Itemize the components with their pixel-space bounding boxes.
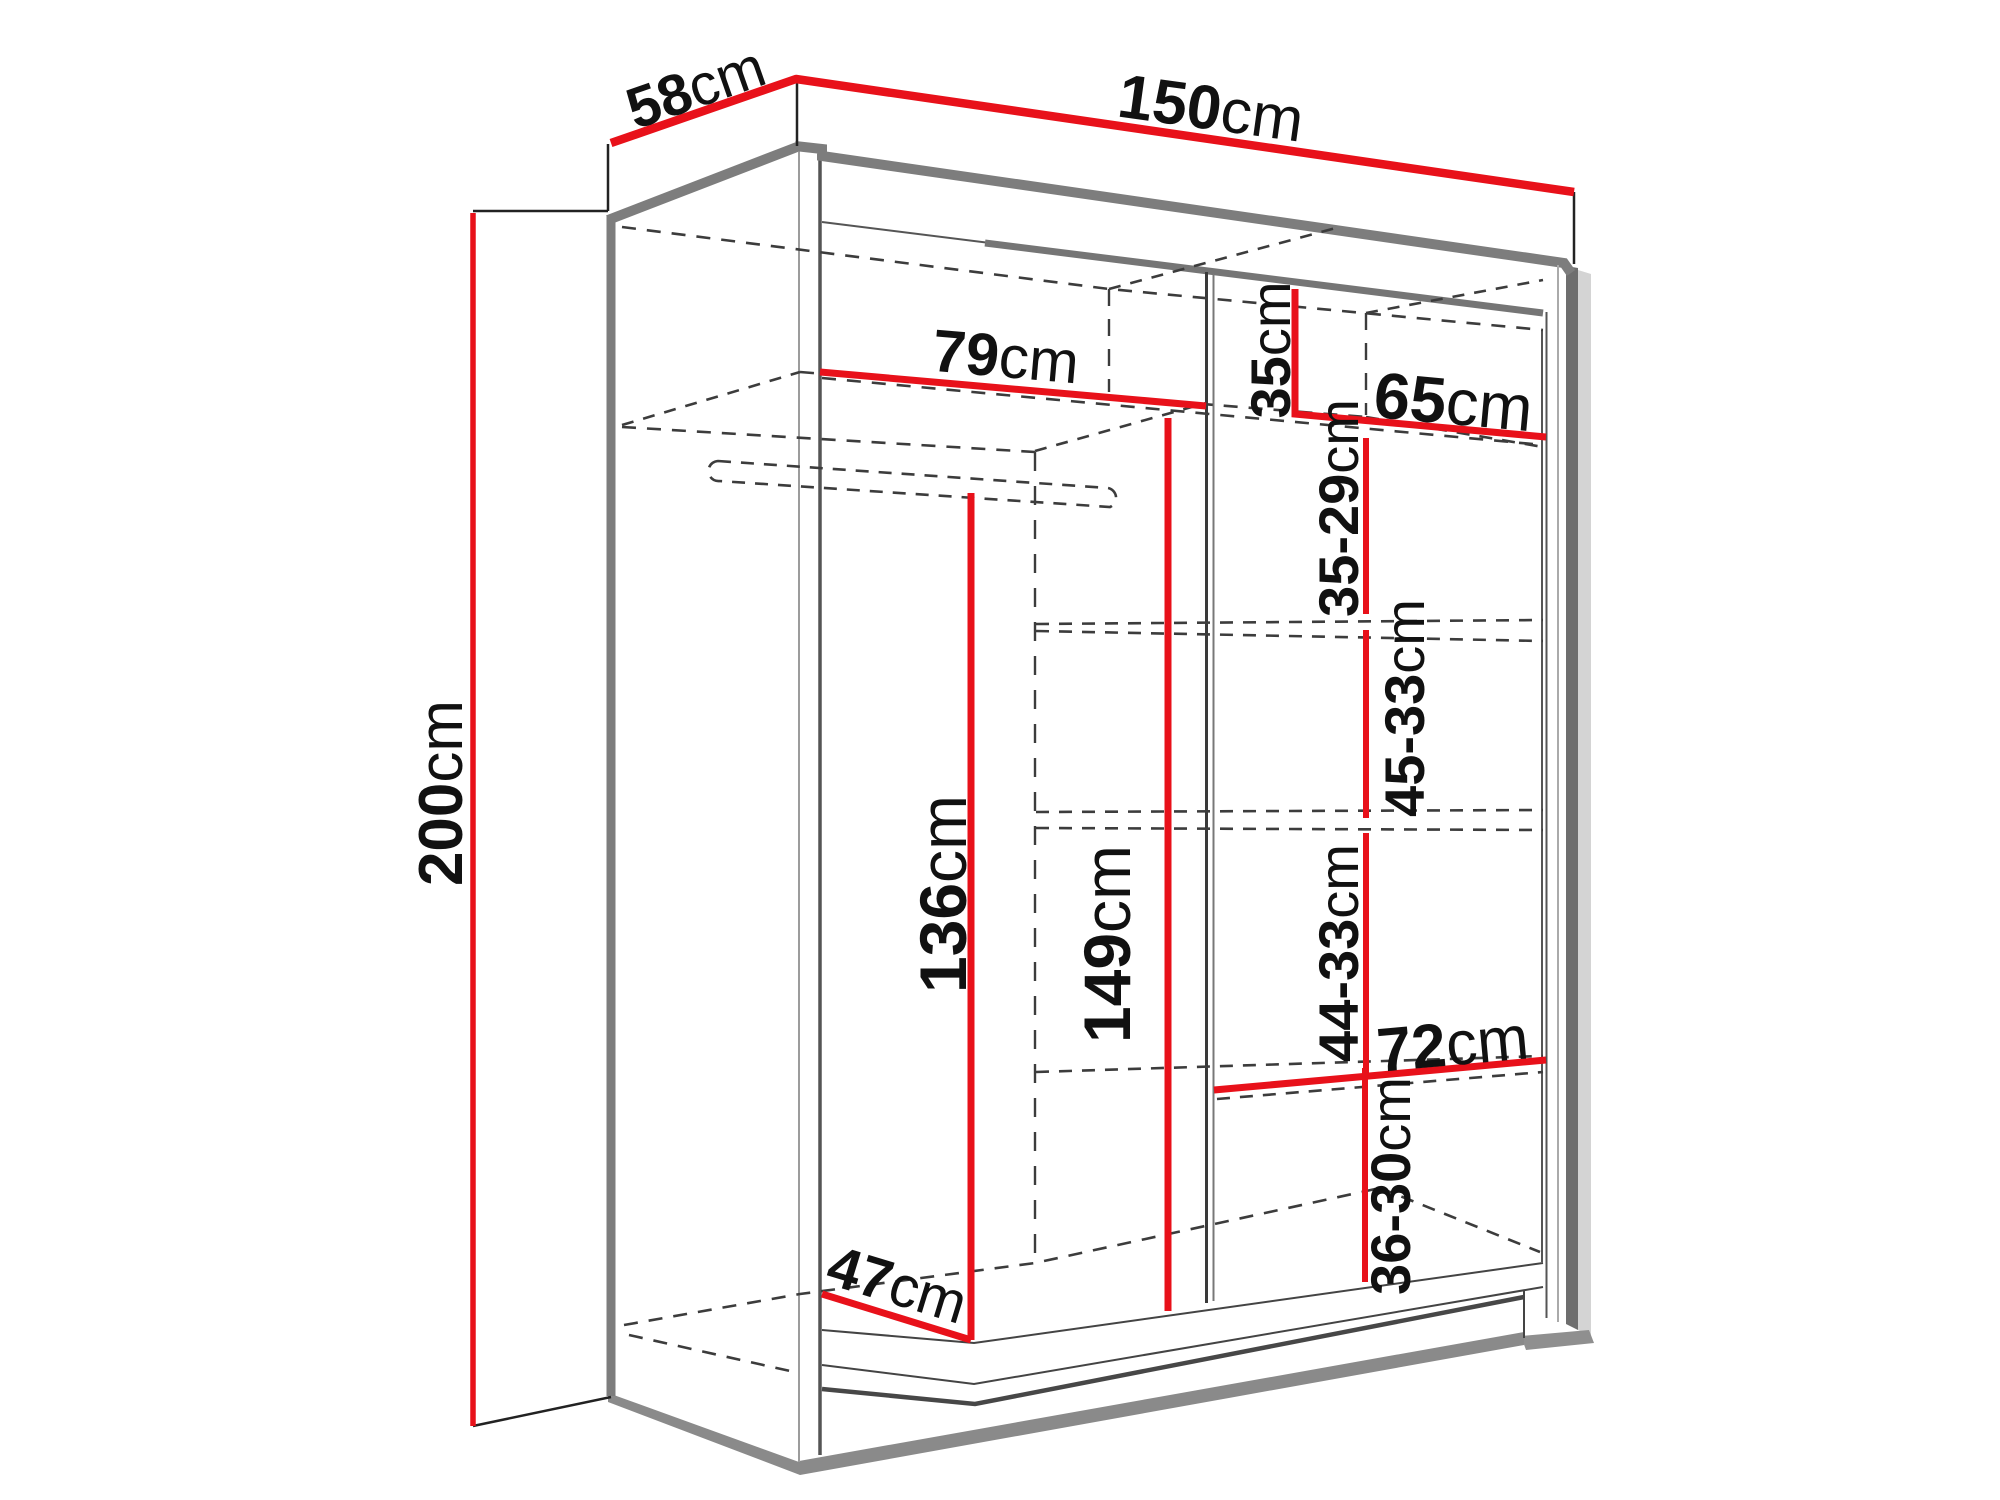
- svg-text:79cm: 79cm: [930, 317, 1082, 397]
- svg-text:149cm: 149cm: [1070, 845, 1144, 1043]
- svg-text:45-33cm: 45-33cm: [1373, 599, 1436, 817]
- svg-text:35-29cm: 35-29cm: [1307, 399, 1370, 617]
- svg-text:35cm: 35cm: [1239, 282, 1302, 419]
- svg-text:44-33cm: 44-33cm: [1307, 844, 1370, 1062]
- svg-text:36-30cm: 36-30cm: [1359, 1077, 1422, 1295]
- svg-text:65cm: 65cm: [1371, 358, 1536, 445]
- svg-text:200cm: 200cm: [407, 700, 476, 886]
- svg-text:72cm: 72cm: [1374, 1003, 1531, 1085]
- svg-text:136cm: 136cm: [906, 795, 980, 993]
